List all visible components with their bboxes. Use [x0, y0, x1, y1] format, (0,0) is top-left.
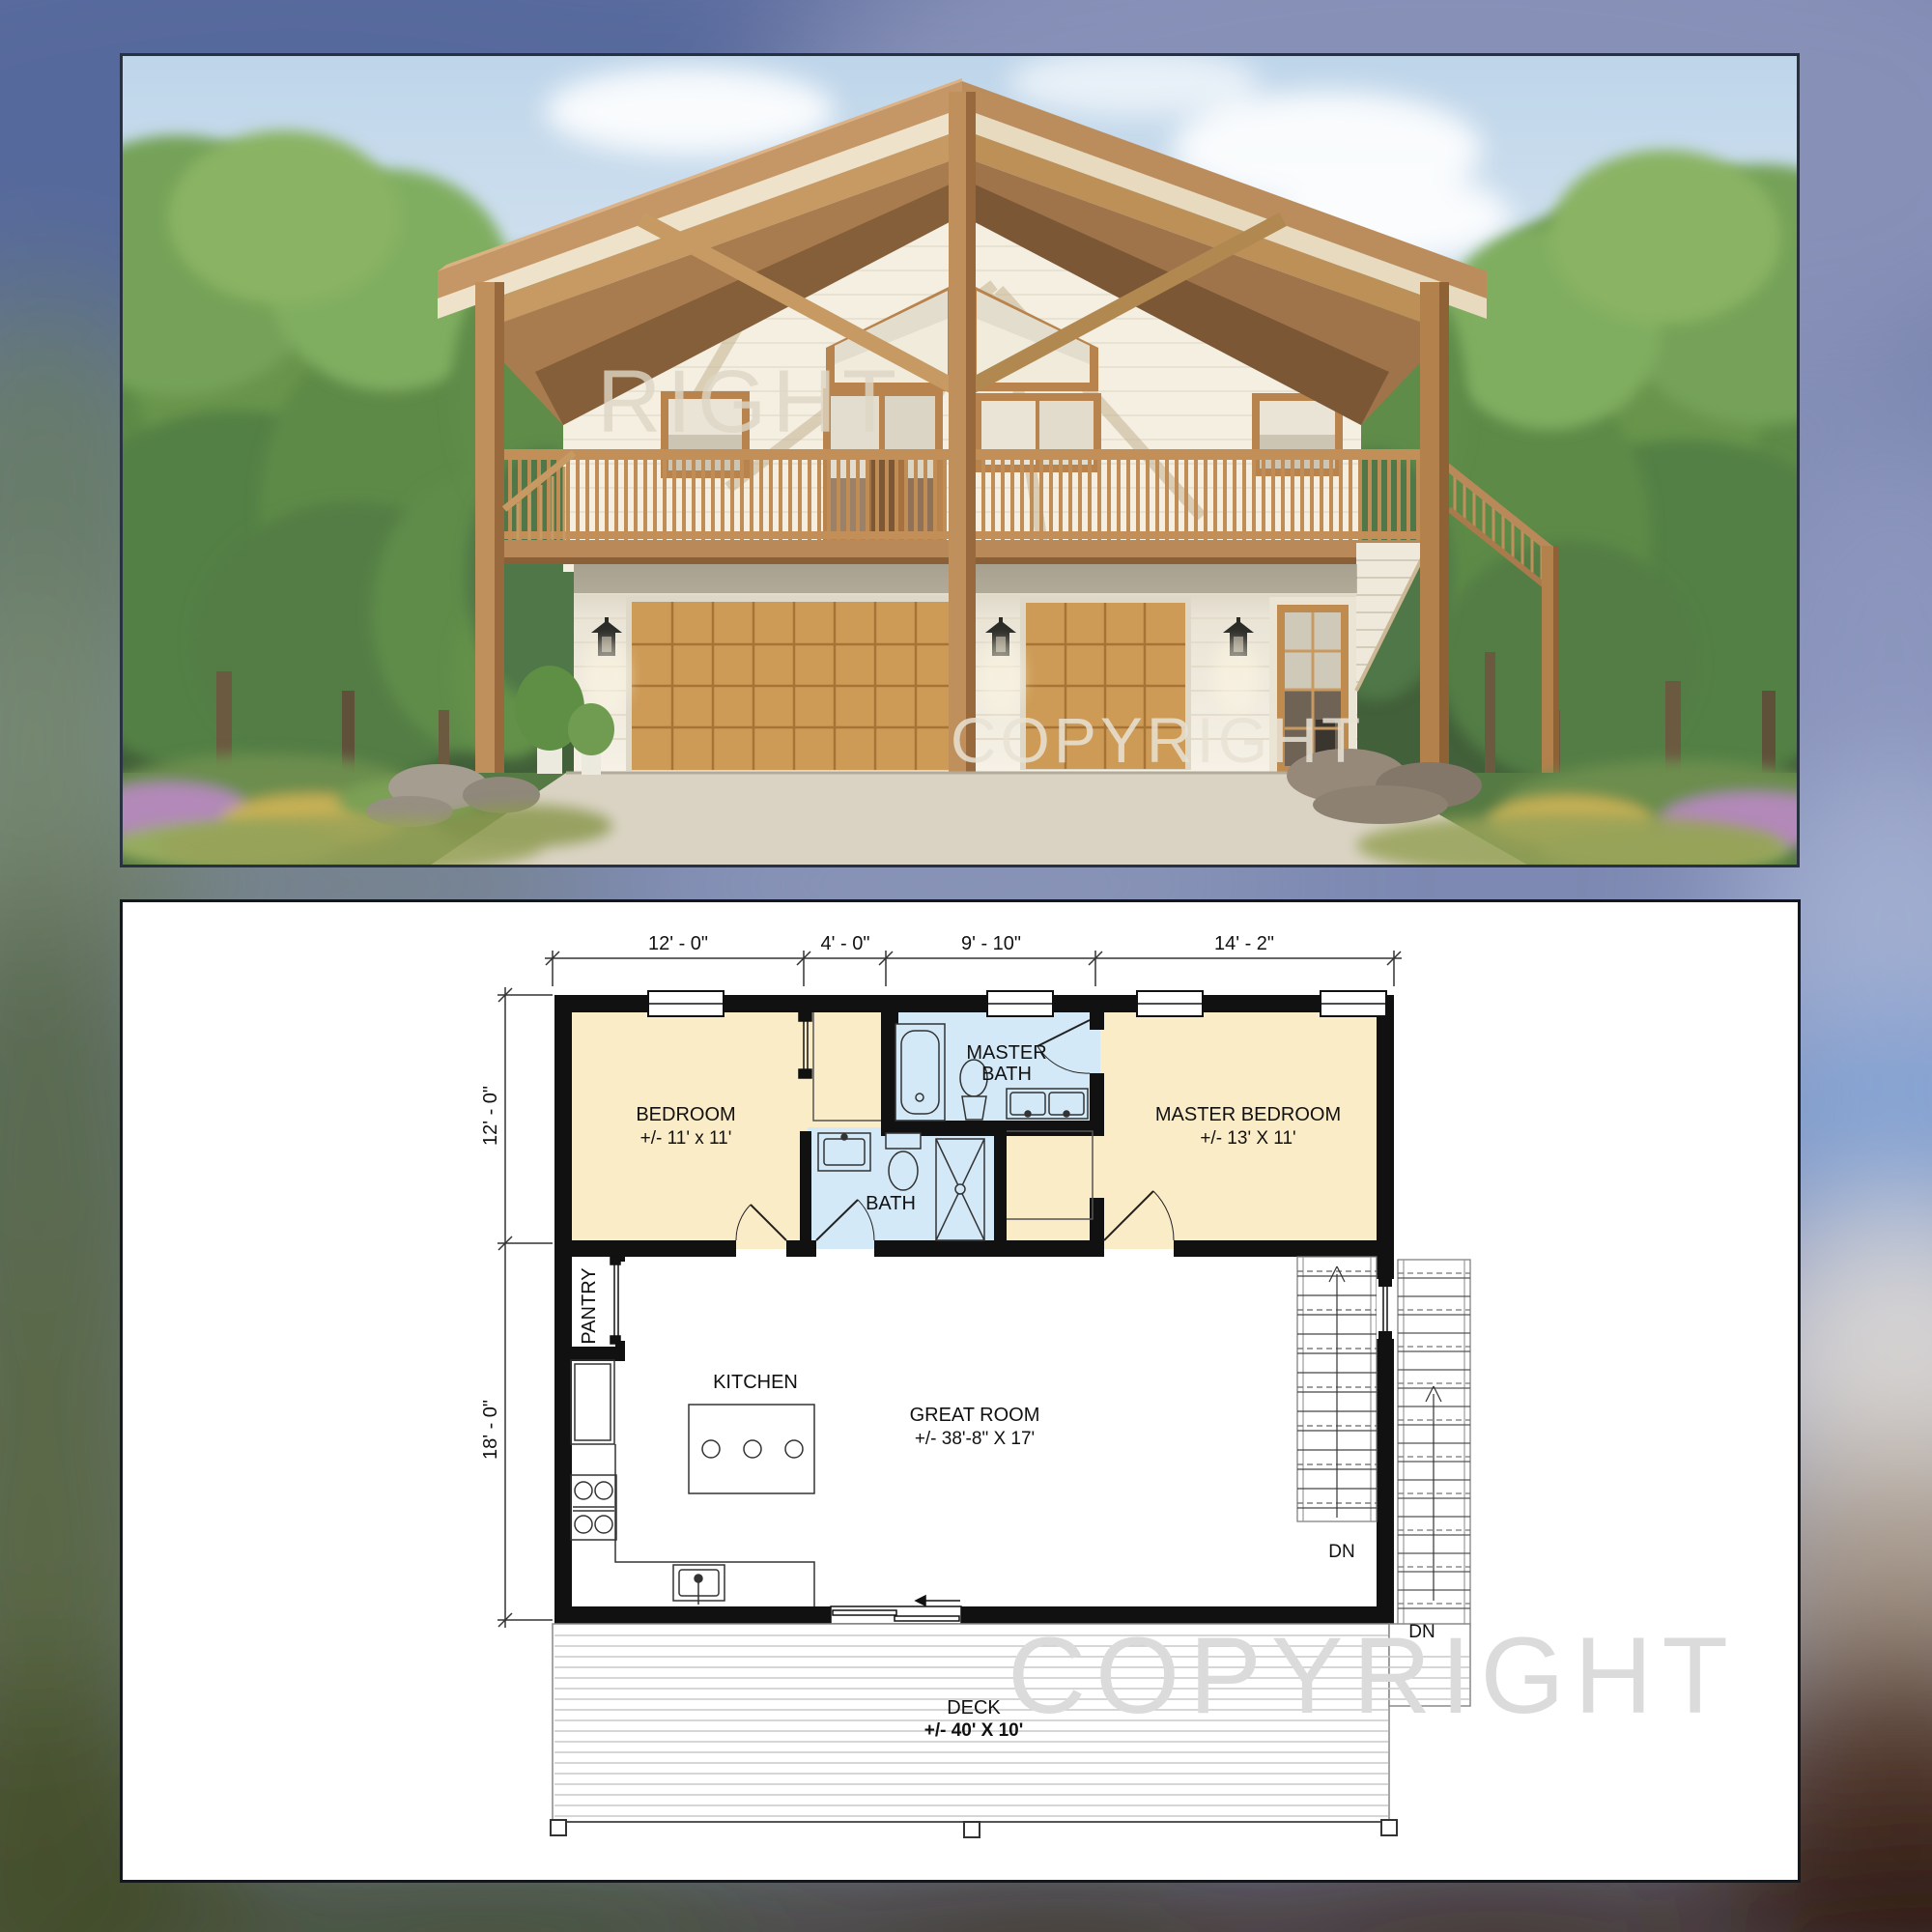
svg-text:PANTRY: PANTRY — [579, 1267, 600, 1344]
svg-text:12' - 0": 12' - 0" — [480, 1086, 501, 1146]
svg-text:KITCHEN: KITCHEN — [713, 1372, 798, 1393]
svg-text:+/- 11' x 11': +/- 11' x 11' — [640, 1128, 732, 1149]
svg-text:+/- 38'-8" X 17': +/- 38'-8" X 17' — [915, 1429, 1035, 1449]
svg-text:GREAT ROOM: GREAT ROOM — [910, 1405, 1040, 1426]
svg-text:BATH: BATH — [981, 1064, 1032, 1085]
svg-text:+/- 40' X 10': +/- 40' X 10' — [924, 1720, 1024, 1741]
svg-text:COPYRIGHT: COPYRIGHT — [1008, 1615, 1738, 1736]
svg-text:DN: DN — [1328, 1542, 1354, 1562]
svg-text:MASTER BEDROOM: MASTER BEDROOM — [1155, 1104, 1341, 1125]
svg-text:DN: DN — [1408, 1622, 1435, 1642]
svg-text:BATH: BATH — [866, 1193, 916, 1214]
svg-text:BEDROOM: BEDROOM — [636, 1104, 735, 1125]
svg-text:14' - 2": 14' - 2" — [1214, 933, 1274, 954]
svg-text:RIGHT: RIGHT — [597, 353, 902, 451]
svg-text:9' - 10": 9' - 10" — [961, 933, 1021, 954]
svg-text:4' - 0": 4' - 0" — [821, 933, 870, 954]
svg-text:DECK: DECK — [947, 1697, 1001, 1719]
svg-text:18' - 0": 18' - 0" — [480, 1400, 501, 1460]
svg-text:MASTER: MASTER — [966, 1042, 1046, 1064]
svg-text:12' - 0": 12' - 0" — [648, 933, 708, 954]
svg-text:+/- 13' X 11': +/- 13' X 11' — [1200, 1128, 1295, 1149]
svg-text:COPYRIGHT: COPYRIGHT — [951, 704, 1364, 776]
